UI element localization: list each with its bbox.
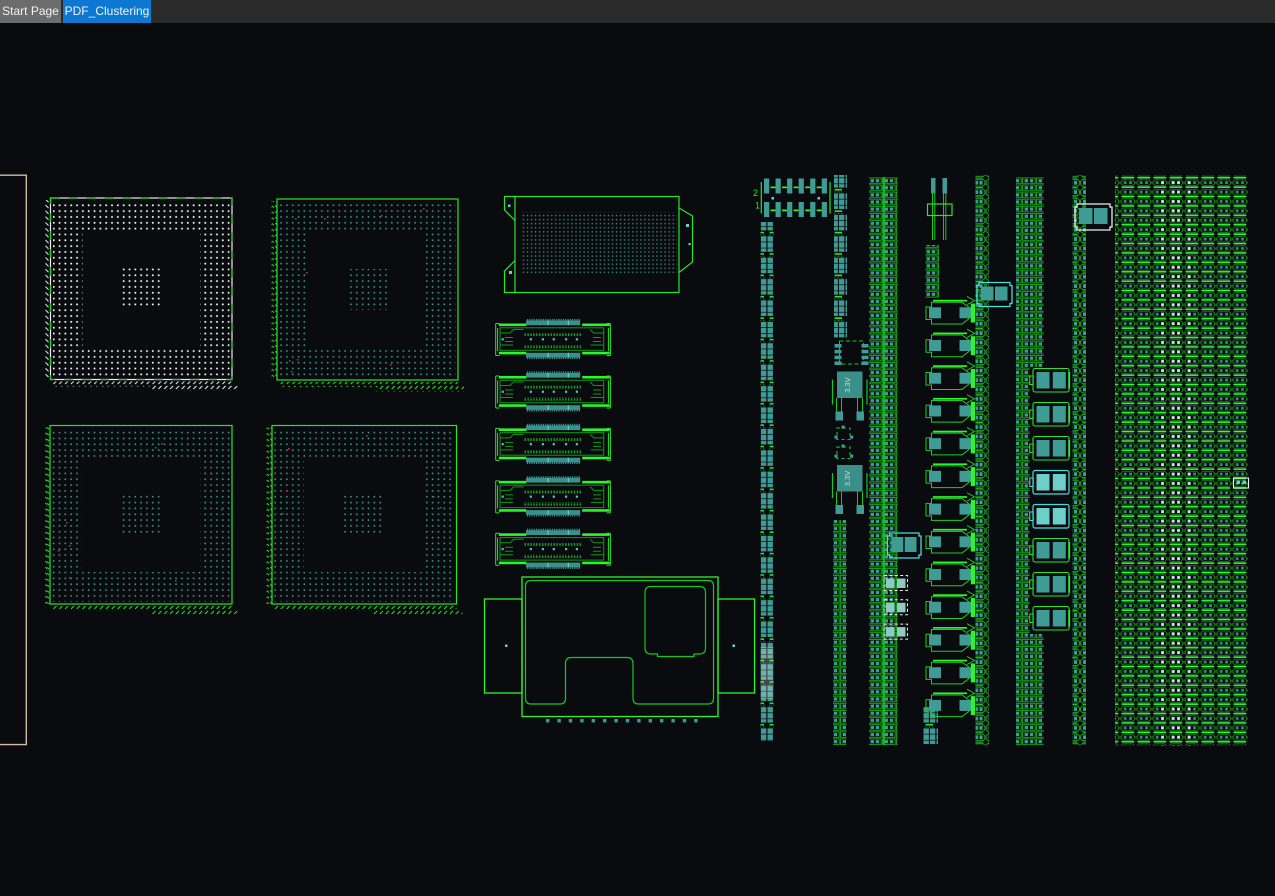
svg-text:3.3V: 3.3V [843,471,852,486]
svg-text:2: 2 [753,188,758,198]
svg-text:1: 1 [755,201,760,211]
svg-text:3.3V: 3.3V [843,377,852,392]
